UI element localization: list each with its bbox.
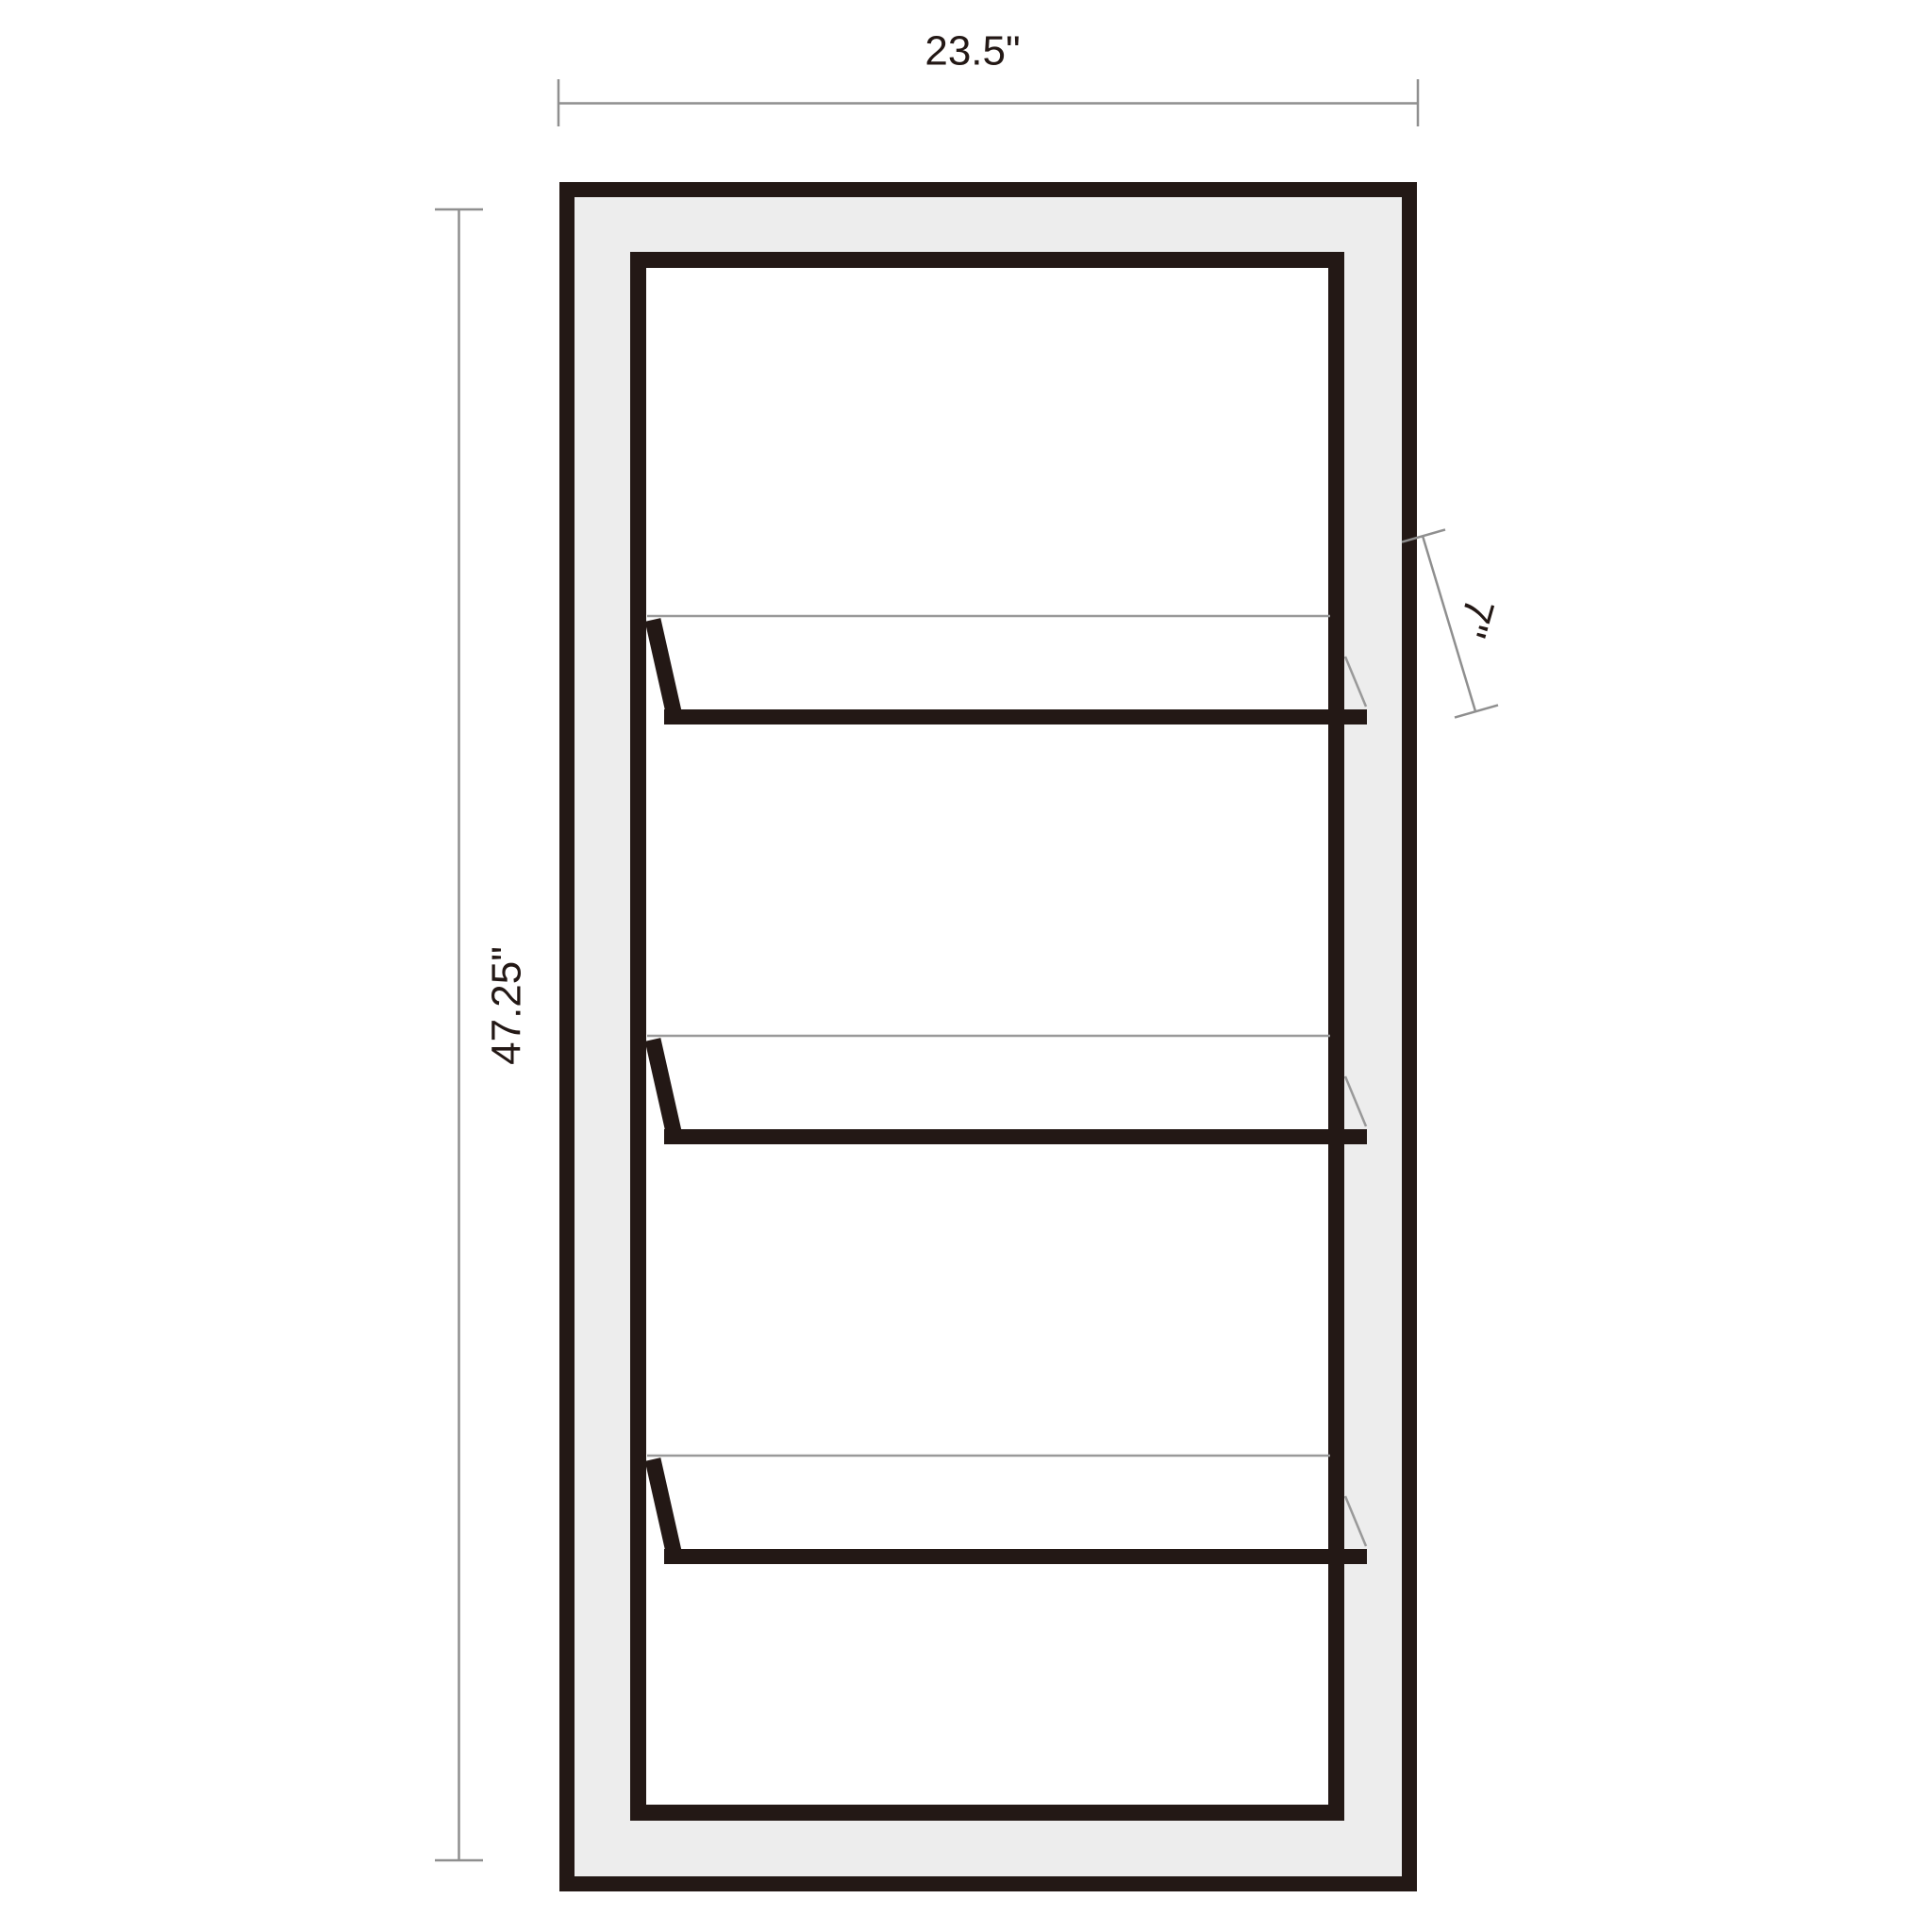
width-dimension-label: 23.5" [924, 28, 1020, 75]
shelf-front-edge [664, 1129, 1367, 1144]
shelf-depth-dimension-label: 7" [1448, 593, 1503, 642]
width-dimension: 23.5" [558, 28, 1418, 127]
cabinet-drawing: 23.5" 47.25" [0, 0, 1932, 1932]
shelf-front-edge [664, 1549, 1367, 1564]
dimension-diagram: 23.5" 47.25" [0, 0, 1932, 1932]
height-dimension-label: 47.25" [484, 946, 530, 1065]
depth-dim-tick-bottom [1455, 705, 1498, 717]
shelf-front-edge [664, 709, 1367, 724]
height-dimension: 47.25" [435, 209, 530, 1860]
shelf-depth-dimension: 7" [1402, 529, 1503, 717]
